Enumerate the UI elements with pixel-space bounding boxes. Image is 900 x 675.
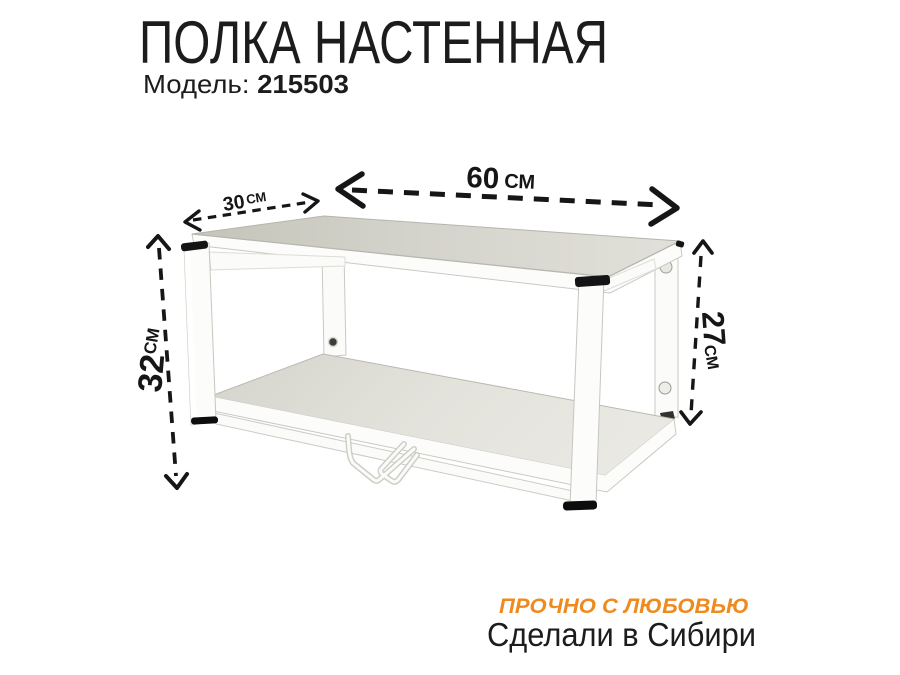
svg-text:СМ: СМ <box>245 189 267 207</box>
svg-text:ПОЛКА НАСТЕННАЯ: ПОЛКА НАСТЕННАЯ <box>139 9 608 76</box>
svg-text:Сделали в Сибири: Сделали в Сибири <box>487 616 756 653</box>
svg-text:60: 60 <box>466 161 500 195</box>
svg-text:Модель: 215503: Модель: 215503 <box>143 69 349 99</box>
svg-text:ПРОЧНО С ЛЮБОВЬЮ: ПРОЧНО С ЛЮБОВЬЮ <box>499 595 749 618</box>
svg-text:30: 30 <box>221 191 246 216</box>
svg-text:27: 27 <box>695 310 732 347</box>
svg-text:СМ: СМ <box>504 171 536 194</box>
svg-text:32: 32 <box>131 353 172 394</box>
